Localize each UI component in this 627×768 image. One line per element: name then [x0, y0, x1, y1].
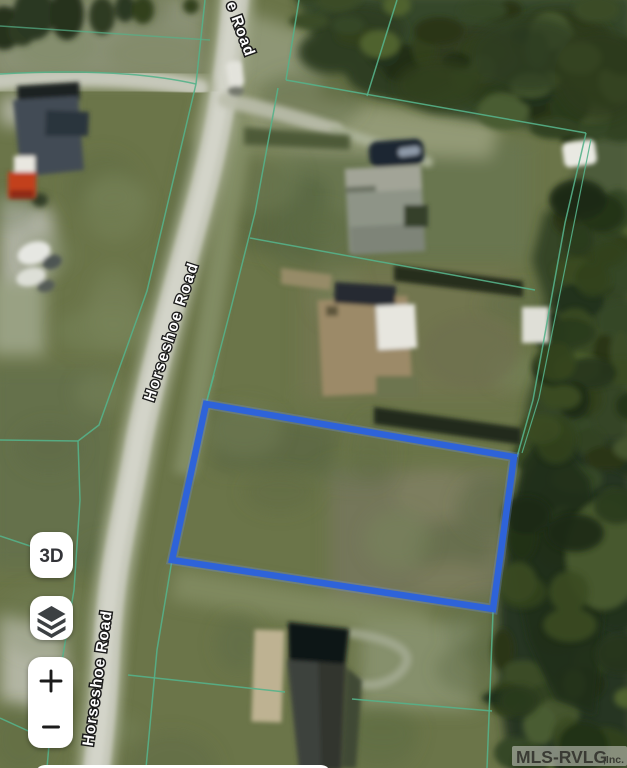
svg-text:MLS-RVLG: MLS-RVLG — [516, 747, 607, 767]
svg-text:3D: 3D — [39, 546, 63, 567]
svg-text:,Inc.: ,Inc. — [603, 754, 624, 766]
